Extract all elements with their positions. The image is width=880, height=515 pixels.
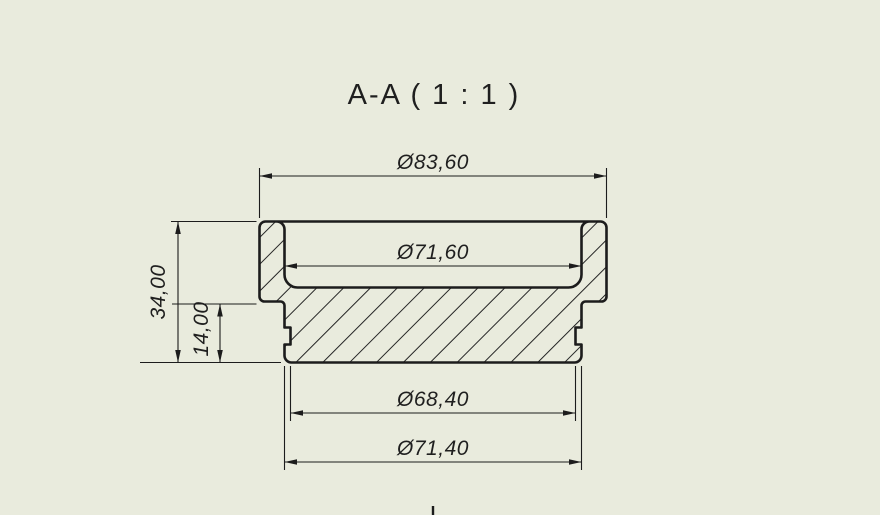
arrowhead-right-icon — [569, 459, 582, 465]
dimension-text: Ø71,40 — [396, 437, 469, 460]
arrowhead-down-icon — [217, 350, 223, 363]
dimension-text: Ø71,60 — [396, 241, 469, 264]
view-title: A-A ( 1 : 1 ) — [348, 79, 521, 111]
arrowhead-right-icon — [594, 173, 607, 179]
arrowhead-left-icon — [285, 459, 298, 465]
dimension-cavity-diameter[interactable]: Ø71,60 — [285, 241, 582, 269]
arrowhead-right-icon — [569, 263, 582, 269]
arrowhead-left-icon — [291, 410, 304, 416]
dimension-outer-diameter[interactable]: Ø83,60 — [260, 151, 607, 218]
arrowhead-left-icon — [260, 173, 273, 179]
dimension-text: Ø68,40 — [396, 388, 469, 411]
arrowhead-up-icon — [217, 304, 223, 317]
dimension-text: Ø83,60 — [396, 151, 469, 174]
dimension-body-diameter[interactable]: Ø71,40 — [285, 366, 582, 470]
arrowhead-right-icon — [563, 410, 576, 416]
arrowhead-up-icon — [175, 222, 181, 235]
arrowhead-left-icon — [285, 263, 298, 269]
dimension-groove-diameter[interactable]: Ø68,40 — [291, 366, 576, 421]
dimension-text: 34,00 — [147, 264, 170, 319]
section-view-canvas: A-A ( 1 : 1 ) Ø83,60 Ø71,60 — [0, 0, 880, 515]
dimension-lower-height[interactable]: 14,00 — [172, 301, 257, 362]
dimension-text: 14,00 — [190, 301, 213, 356]
arrowhead-down-icon — [175, 350, 181, 363]
drawing-sheet: A-A ( 1 : 1 ) Ø83,60 Ø71,60 — [0, 0, 880, 515]
